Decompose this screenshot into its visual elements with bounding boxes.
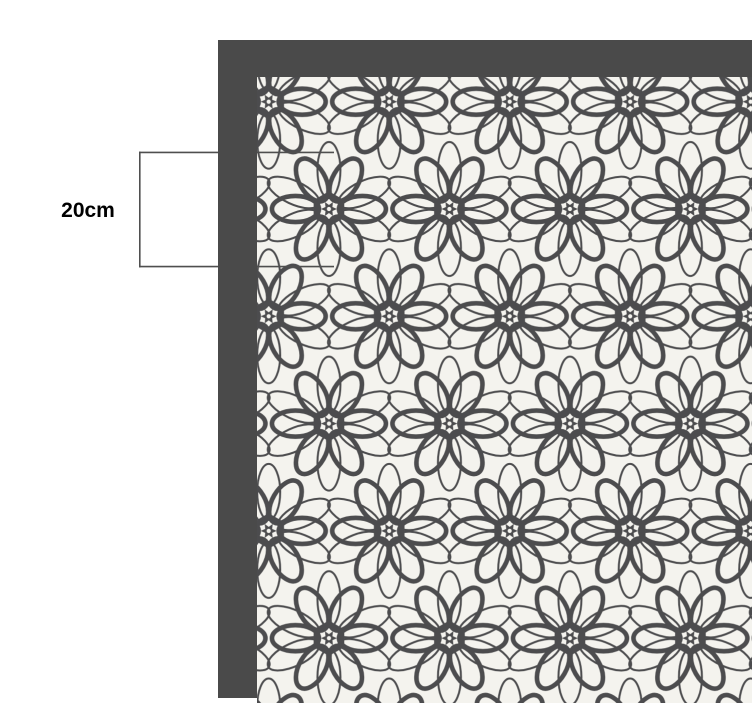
frame-left-edge: [218, 40, 257, 698]
repeat-size-label: 20cm: [52, 199, 124, 223]
frame-top-edge: [218, 40, 752, 77]
pattern-repeat-diagram: 20cm: [0, 0, 752, 703]
wallpaper-pattern-area: [257, 77, 752, 703]
pattern-fill: [257, 77, 752, 703]
floral-pattern-svg: [257, 77, 752, 703]
